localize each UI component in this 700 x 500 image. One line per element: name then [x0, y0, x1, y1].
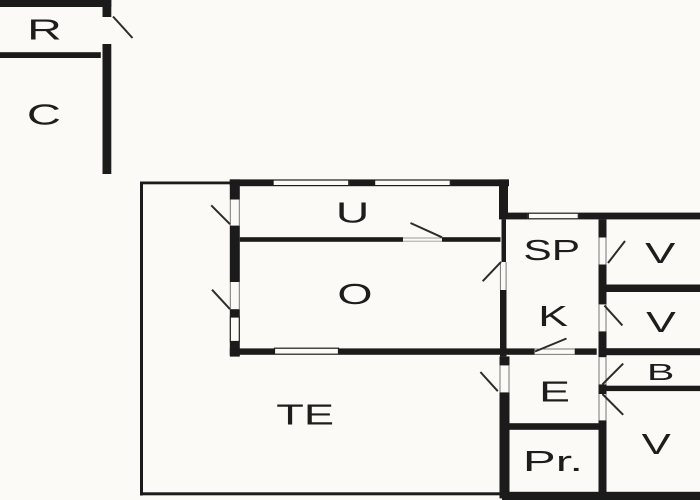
svg-text:C: C	[27, 100, 61, 132]
svg-text:B: B	[647, 359, 675, 385]
svg-text:E: E	[539, 377, 570, 409]
svg-text:Pr.: Pr.	[523, 446, 583, 478]
svg-text:R: R	[27, 15, 62, 47]
svg-text:V: V	[646, 307, 676, 339]
svg-text:V: V	[645, 238, 675, 270]
svg-text:U: U	[336, 198, 369, 230]
svg-text:SP: SP	[523, 235, 580, 267]
svg-text:O: O	[337, 279, 372, 311]
svg-text:V: V	[642, 429, 671, 461]
svg-text:K: K	[538, 301, 568, 333]
svg-text:TE: TE	[276, 399, 334, 431]
